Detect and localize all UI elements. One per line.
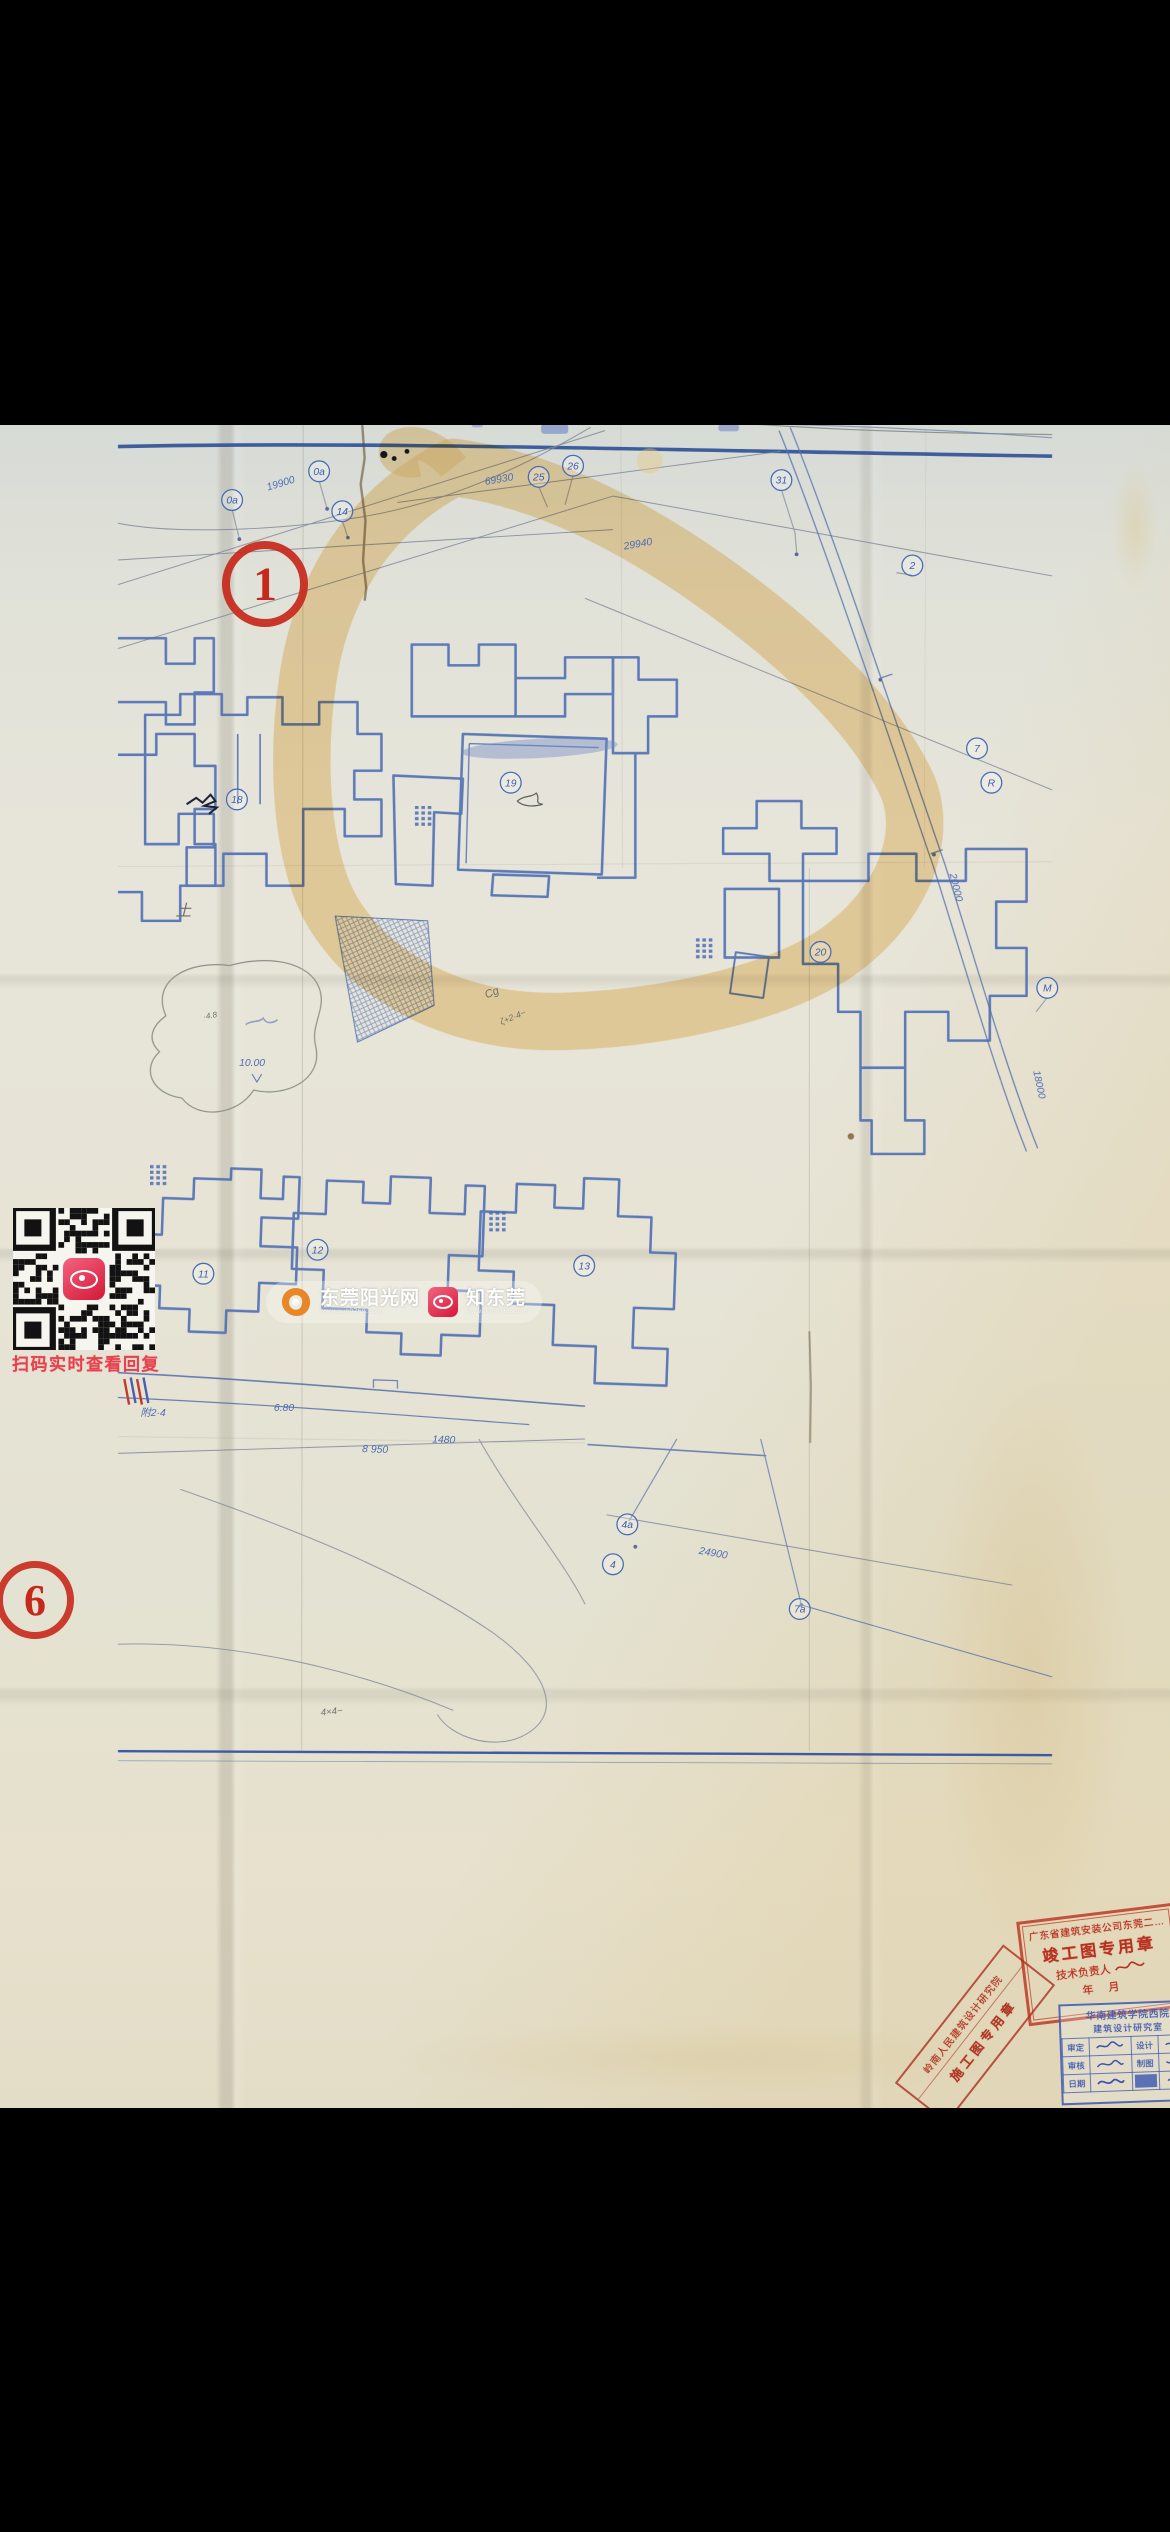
ink-scrawl xyxy=(187,795,217,814)
drawing-border xyxy=(118,1751,1052,1755)
svg-text:4a: 4a xyxy=(622,1520,634,1531)
site-plan-drawing: 0a0a1425263127RM1819201112134a47a 199006… xyxy=(0,425,1170,2108)
svg-text:0a: 0a xyxy=(313,467,325,478)
cell-riqi: 日期 xyxy=(1063,2074,1090,2093)
cell-shenhe: 审核 xyxy=(1063,2056,1090,2075)
svg-text:26: 26 xyxy=(566,461,579,472)
eye-icon xyxy=(70,1270,98,1289)
watermark-brand2-name: 知东莞 xyxy=(466,1289,528,1308)
svg-text:M: M xyxy=(1043,983,1052,994)
watermark: 东莞阳光网 www.sun0769.com 知东莞 www.sun0769.co… xyxy=(266,1281,542,1323)
cell-sheji: 设计 xyxy=(1131,2035,1158,2054)
filled-seal-cell xyxy=(1135,2074,1157,2088)
marker-1-number: 1 xyxy=(253,557,277,612)
svg-text:12: 12 xyxy=(312,1245,324,1256)
pond-outline xyxy=(150,961,321,1112)
svg-text:6.80: 6.80 xyxy=(274,1403,294,1414)
svg-text:14: 14 xyxy=(337,507,349,518)
svg-text:20: 20 xyxy=(814,948,827,959)
svg-text:2: 2 xyxy=(908,561,915,572)
road-lines-top xyxy=(118,425,1052,456)
svg-text:19: 19 xyxy=(505,778,517,789)
ink-smudges xyxy=(472,425,739,434)
qr-caption: 扫码实时查看回复 xyxy=(12,1350,182,1375)
builder-stamp-title: 竣工图专用章 xyxy=(1022,1927,1170,1969)
svg-text:19900: 19900 xyxy=(265,475,296,494)
builder-stamp-role: 技术负责人 xyxy=(1055,1961,1112,1984)
svg-text:0a: 0a xyxy=(226,496,238,507)
review-title-block-stamp: 华南建筑学院西院 建筑设计研究室 审定 设计 审核 制图 日期 xyxy=(1058,2000,1170,2106)
cell-shending: 审定 xyxy=(1062,2038,1089,2057)
svg-text:·4.8: ·4.8 xyxy=(203,1010,219,1021)
svg-text:13: 13 xyxy=(578,1261,590,1272)
svg-text:附2·4: 附2·4 xyxy=(140,1407,166,1419)
svg-text:20000: 20000 xyxy=(946,871,964,903)
svg-text:7a: 7a xyxy=(794,1605,806,1616)
watermark-brand1-name: 东莞阳光网 xyxy=(320,1289,420,1308)
cell-zhitu: 制图 xyxy=(1131,2053,1158,2072)
dim-lines-bottom-right xyxy=(587,1439,1052,1677)
watermark-brand1: 东莞阳光网 www.sun0769.com xyxy=(320,1289,420,1315)
svg-text:25: 25 xyxy=(532,472,545,483)
qr-code[interactable] xyxy=(13,1208,155,1350)
svg-text:8 950: 8 950 xyxy=(362,1444,389,1456)
watermark-brand2: 知东莞 www.sun0769.com xyxy=(466,1289,528,1315)
eye-app-icon xyxy=(63,1258,105,1300)
svg-text:18: 18 xyxy=(231,795,243,806)
eye-icon xyxy=(433,1295,453,1309)
signature-scribble xyxy=(1113,1957,1148,1975)
red-hatch-marks xyxy=(124,1377,148,1404)
svg-text:11: 11 xyxy=(198,1269,209,1280)
svg-text:R: R xyxy=(988,778,996,789)
svg-text:24900: 24900 xyxy=(697,1546,728,1562)
marker-6-number: 6 xyxy=(24,1575,46,1626)
phone-screenshot: { "annotations": { "circle1": {"label": … xyxy=(0,0,1170,2532)
svg-text:31: 31 xyxy=(776,476,788,487)
svg-text:18000: 18000 xyxy=(1030,1070,1047,1101)
svg-text:10.00: 10.00 xyxy=(239,1058,265,1069)
svg-text:4: 4 xyxy=(610,1560,616,1571)
blue-wash xyxy=(461,735,618,762)
zhidongguan-app-icon xyxy=(428,1287,458,1317)
road-bottom-left xyxy=(118,1373,585,1425)
svg-text:1480: 1480 xyxy=(432,1435,456,1447)
blueprint-photo: 0a0a1425263127RM1819201112134a47a 199006… xyxy=(0,425,1170,2108)
review-stamp-table: 审定 设计 审核 制图 日期 xyxy=(1061,2034,1170,2094)
watermark-brand2-url: www.sun0769.com xyxy=(466,1308,528,1315)
red-marker-circle-1: 1 xyxy=(222,541,308,627)
svg-text:4×4~: 4×4~ xyxy=(320,1705,343,1718)
watermark-brand1-url: www.sun0769.com xyxy=(320,1308,420,1315)
sunshine-net-logo-icon xyxy=(280,1286,312,1318)
svg-text:土: 土 xyxy=(175,902,192,920)
